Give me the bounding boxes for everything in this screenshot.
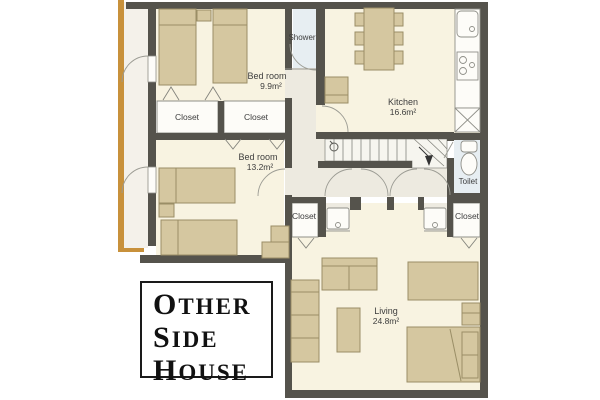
- other-side-house-box: Other Side House: [140, 281, 273, 378]
- sink-icon: [457, 11, 478, 37]
- living-name: Living: [374, 306, 398, 316]
- kitchen-name: Kitchen: [388, 97, 418, 107]
- title-line-2: Side: [153, 322, 271, 355]
- fridge-icon: [455, 108, 480, 132]
- closet-label: Closet: [292, 211, 317, 221]
- toilet-icon: [461, 141, 477, 175]
- bedroom1-area: 9.9m²: [260, 81, 282, 91]
- title-line-3: House: [153, 355, 271, 388]
- shower-label: Shower: [288, 33, 315, 42]
- closet-label: Closet: [175, 112, 200, 122]
- kitchen-area: 16.6m²: [390, 107, 417, 117]
- bedroom2-name: Bed room: [238, 152, 277, 162]
- living-area: 24.8m²: [373, 316, 400, 326]
- closet-label: Closet: [455, 211, 480, 221]
- bedroom2-area: 13.2m²: [247, 162, 274, 172]
- closet-label: Closet: [244, 112, 269, 122]
- title-line-1: Other: [153, 289, 271, 322]
- floor-plan-svg: Shower Bed room 9.9m² Closet Closet Kitc…: [0, 0, 600, 400]
- bed-icon: [407, 327, 480, 382]
- floor-plan-screenshot: Shower Bed room 9.9m² Closet Closet Kitc…: [0, 0, 600, 400]
- toilet-label: Toilet: [459, 177, 478, 186]
- kitchen-counter: [455, 9, 480, 108]
- washbasin-icon: [424, 208, 446, 229]
- washbasin-icon: [327, 208, 349, 229]
- balcony: [118, 0, 148, 252]
- stove-icon: [457, 52, 478, 80]
- bedroom1-name: Bed room: [247, 71, 286, 81]
